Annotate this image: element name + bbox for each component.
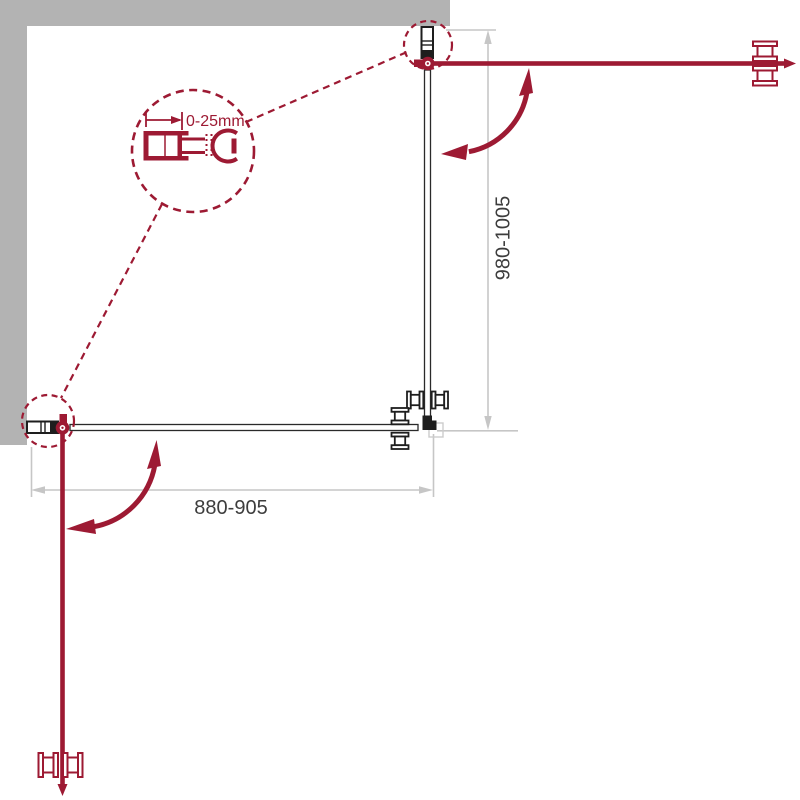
width-dimension-label: 880-905 — [194, 497, 267, 519]
detail-adjustment-dimension: 0-25mm — [146, 112, 245, 130]
top-door-end-cap — [784, 59, 796, 69]
shower-enclosure-diagram: 980-1005 880-905 0-25mm — [0, 0, 800, 800]
wall-left-band — [0, 0, 27, 445]
depth-dimension-label: 980-1005 — [492, 196, 514, 281]
dimension-width: 880-905 — [31, 434, 434, 519]
leader-line-to-top-hinge — [246, 52, 407, 122]
dimension-depth: 980-1005 — [437, 30, 518, 431]
detail-wall-profile-section — [144, 131, 237, 162]
profile-rail-top — [182, 138, 205, 141]
technical-drawing-canvas: 980-1005 880-905 0-25mm — [0, 0, 800, 800]
handle-flange — [54, 753, 59, 777]
arrow-left-icon — [31, 486, 45, 493]
detail-arrow-icon — [171, 116, 182, 124]
swing-arrowhead-up-icon — [147, 440, 161, 469]
top-door-swing-arrow — [441, 68, 533, 160]
top-side-assembly — [404, 21, 452, 418]
handle-flange — [392, 421, 409, 425]
swing-arc — [95, 465, 155, 526]
handle-waist — [758, 71, 773, 82]
handle-waist — [395, 437, 405, 446]
handle-flange — [753, 57, 777, 62]
bottom-door-glass-edge — [60, 433, 65, 784]
handle-waist — [43, 758, 54, 773]
profile-left-web — [144, 131, 149, 161]
handle-waist — [436, 395, 445, 405]
leader-line-to-bottom-hinge — [61, 204, 162, 398]
wall-top-band — [0, 0, 450, 26]
swing-arrowhead-left-icon — [441, 144, 468, 160]
arrow-right-icon — [419, 486, 433, 493]
handle-waist — [68, 758, 79, 773]
handle-flange — [753, 81, 777, 86]
handle-waist — [758, 46, 773, 57]
swing-arrowhead-up-icon — [519, 68, 533, 96]
pivot-knuckle-bar — [232, 139, 237, 154]
profile-inner-web — [178, 131, 183, 161]
pivot-pin — [427, 62, 429, 64]
handle-flange — [444, 392, 448, 409]
handle-flange — [78, 753, 83, 777]
handle-waist — [395, 412, 405, 421]
handle-flange — [420, 392, 424, 409]
swing-arc — [469, 93, 527, 152]
bottom-fixed-glass-panel — [70, 425, 418, 431]
adjustment-range-label: 0-25mm — [186, 113, 245, 130]
arrow-up-icon — [484, 30, 491, 44]
pivot-pin — [61, 427, 63, 429]
bottom-door-swing-arrow — [66, 440, 161, 534]
arrow-down-icon — [484, 416, 491, 430]
profile-rail-bottom — [182, 151, 205, 154]
swing-arrowhead-left-icon — [66, 519, 96, 534]
handle-flange — [392, 445, 409, 449]
top-door-glass-edge — [433, 61, 784, 66]
wall-structure — [0, 0, 450, 445]
bottom-door-end-cap — [58, 784, 68, 796]
corner-bracket-horizontal — [423, 421, 437, 431]
corner-junction — [423, 416, 444, 438]
bottom-door-open — [39, 433, 83, 796]
bottom-side-assembly — [22, 395, 418, 449]
top-fixed-glass-panel — [425, 70, 431, 418]
handle-waist — [411, 395, 420, 405]
detail-callout: 0-25mm — [61, 52, 407, 398]
